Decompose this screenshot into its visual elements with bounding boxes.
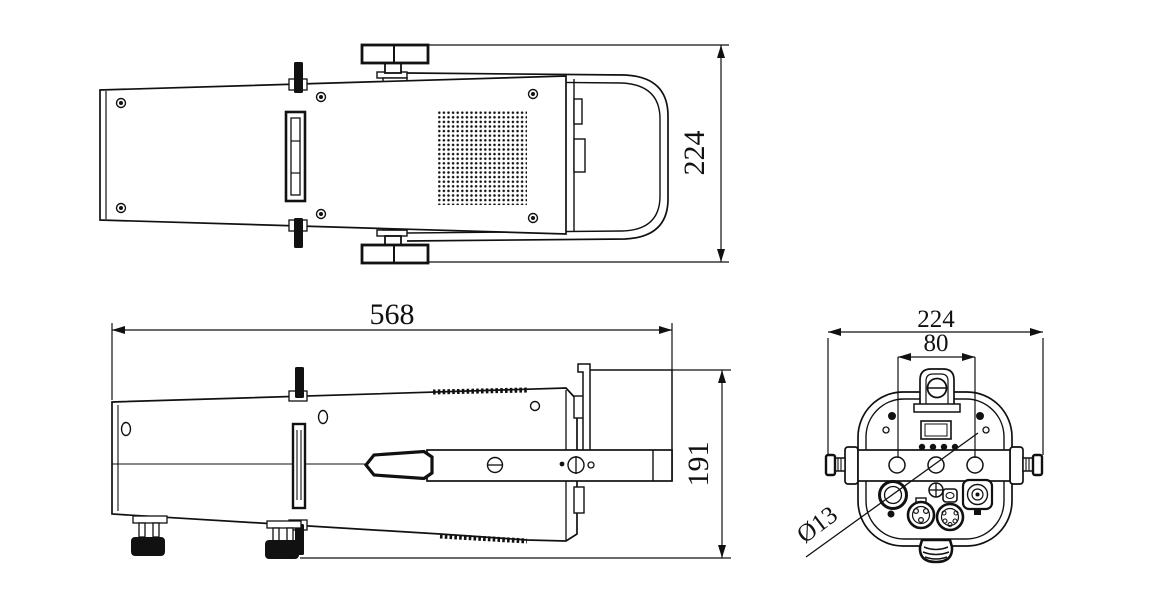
fixture-dimension-drawing: 224 xyxy=(0,0,1157,600)
rear-latch-tab xyxy=(574,487,584,513)
arrowhead xyxy=(717,45,725,58)
vent-grid xyxy=(438,110,527,205)
arrowhead xyxy=(717,249,725,262)
shutter-slot xyxy=(286,112,305,201)
arrowhead xyxy=(1030,328,1043,336)
hanging-hole-right xyxy=(967,457,983,473)
arrowhead xyxy=(828,328,841,336)
arrowhead xyxy=(898,353,911,361)
top-view-body xyxy=(100,62,585,248)
arrowhead xyxy=(962,353,975,361)
dim-side-view-568: 568 xyxy=(370,298,415,331)
shutter-slot xyxy=(293,424,305,508)
dim-rear-view-diameter-13: Ø13 xyxy=(792,501,843,548)
yoke-arm xyxy=(366,450,672,481)
yoke-knob-top xyxy=(362,45,428,83)
yoke-knob-right xyxy=(1033,455,1042,475)
hanging-hole-left xyxy=(889,457,905,473)
top-view: 224 xyxy=(100,45,729,263)
rear-latch-tab xyxy=(574,99,582,124)
dim-rear-view-224: 224 xyxy=(917,306,955,333)
foot-pad xyxy=(131,537,165,556)
shutter-handle-top xyxy=(294,62,303,93)
cable-gland xyxy=(920,540,952,562)
rubber-feet xyxy=(131,516,301,559)
yoke-knob-left xyxy=(826,455,835,475)
power-connector xyxy=(963,480,992,515)
rear-latch-tab xyxy=(574,139,585,172)
dim-side-view-191: 191 xyxy=(682,442,715,487)
technical-drawing-sheet: 224 xyxy=(0,0,1157,600)
arrowhead xyxy=(718,370,726,383)
tilt-lock-handle xyxy=(366,452,432,479)
foot-pad xyxy=(265,540,299,559)
arrowhead xyxy=(659,326,672,334)
dim-rear-view-80: 80 xyxy=(924,330,949,357)
fixing-screw xyxy=(929,483,943,497)
shutter-handle-bottom xyxy=(294,218,303,248)
arrowhead xyxy=(718,545,726,558)
top-clevis-bracket xyxy=(914,369,960,412)
shutter-handle-top xyxy=(295,367,304,398)
side-view: 568 191 xyxy=(112,298,731,559)
yoke-knob-bottom xyxy=(362,225,428,263)
rear-view: 224 80 Ø13 xyxy=(792,306,1043,562)
dim-top-view-224: 224 xyxy=(678,131,711,176)
arrowhead xyxy=(112,326,125,334)
